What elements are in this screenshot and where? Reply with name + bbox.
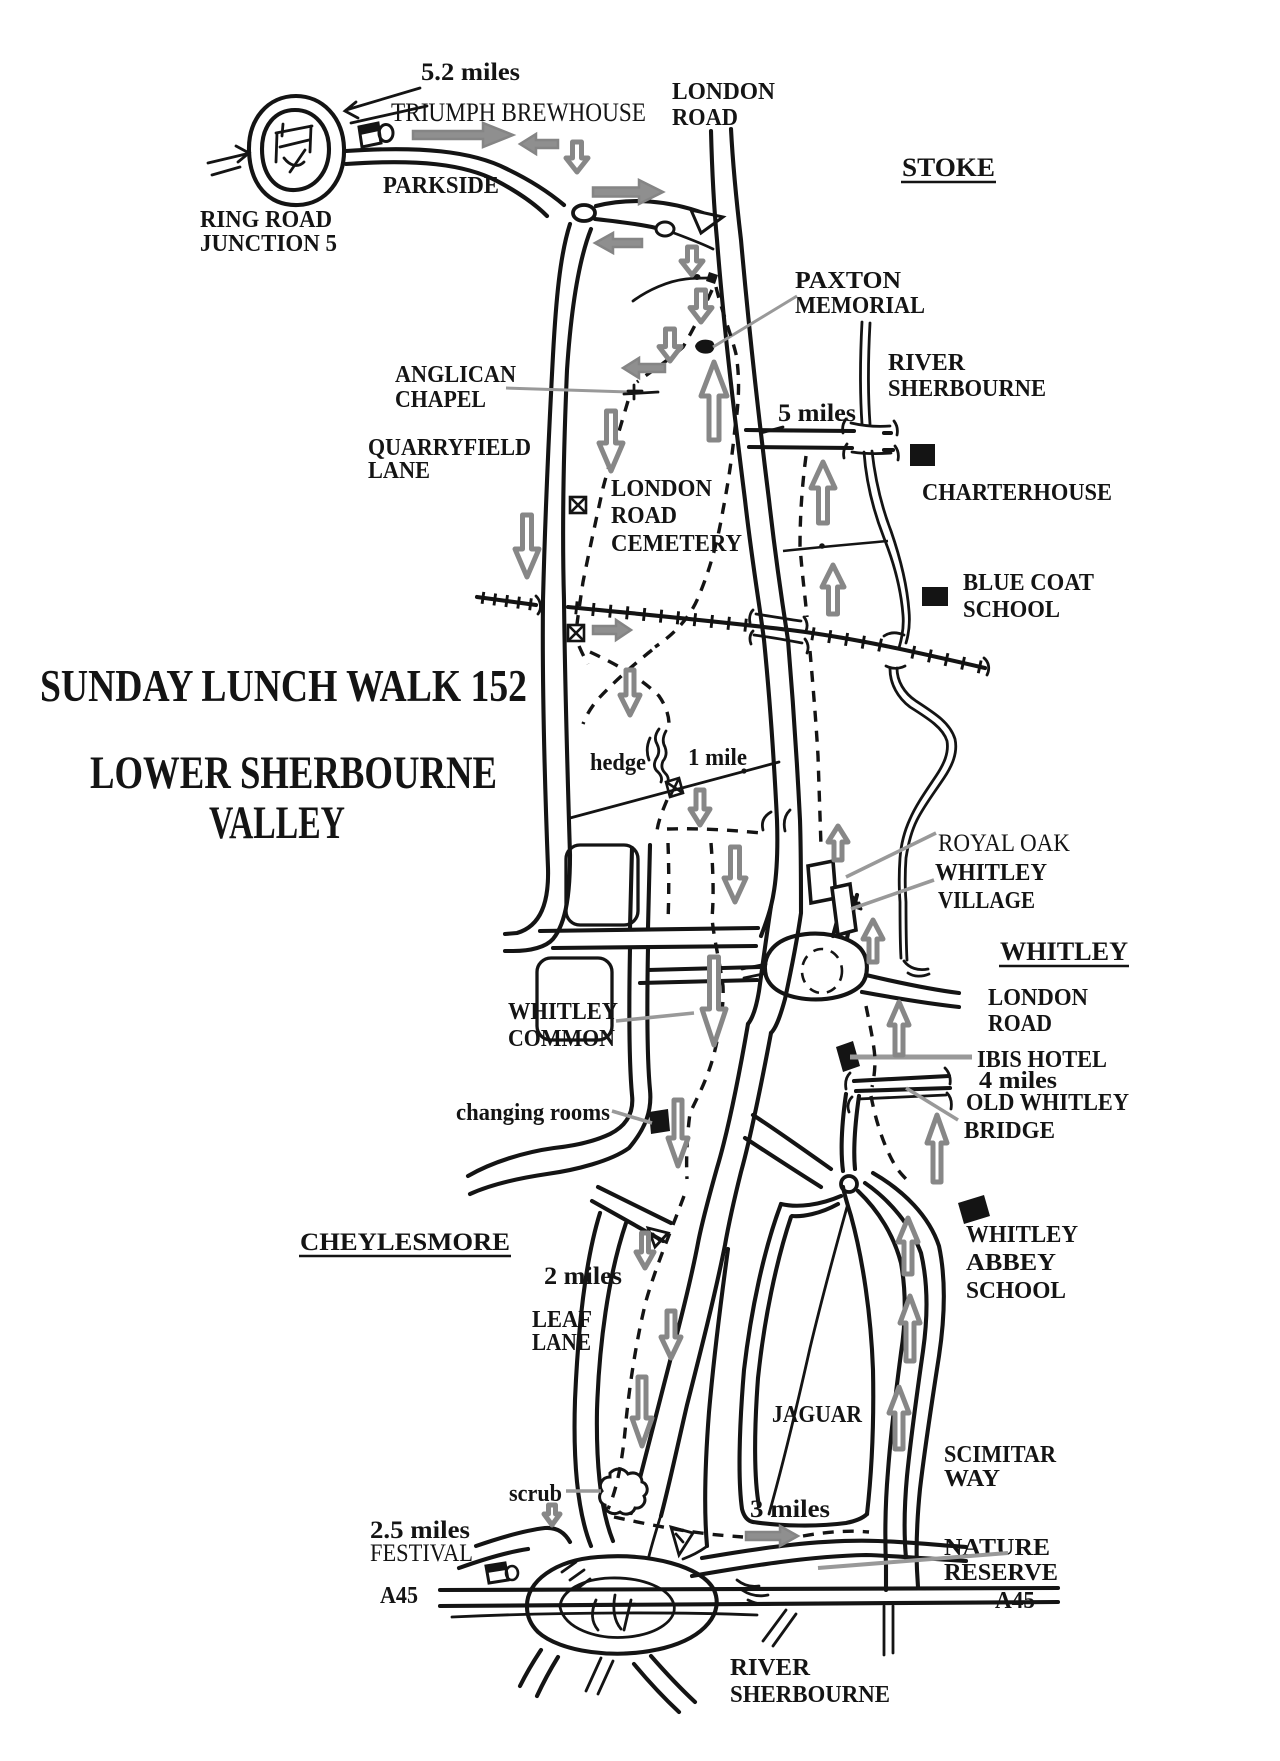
svg-text:WAY: WAY xyxy=(944,1466,1000,1492)
svg-text:SCHOOL: SCHOOL xyxy=(963,597,1060,623)
svg-text:TRIUMPH BREWHOUSE: TRIUMPH BREWHOUSE xyxy=(391,98,646,127)
svg-text:RIVER: RIVER xyxy=(888,350,966,376)
svg-text:BRIDGE: BRIDGE xyxy=(964,1118,1055,1144)
svg-text:RIVER: RIVER xyxy=(730,1655,811,1681)
svg-text:JAGUAR: JAGUAR xyxy=(772,1402,863,1428)
svg-text:CHEYLESMORE: CHEYLESMORE xyxy=(300,1229,510,1256)
svg-text:5.2 miles: 5.2 miles xyxy=(421,59,520,86)
svg-text:LONDON: LONDON xyxy=(611,476,713,502)
svg-text:A45: A45 xyxy=(380,1583,418,1609)
svg-text:JUNCTION 5: JUNCTION 5 xyxy=(200,231,337,257)
svg-text:BLUE COAT: BLUE COAT xyxy=(963,570,1094,596)
svg-text:CHARTERHOUSE: CHARTERHOUSE xyxy=(922,480,1112,506)
svg-text:3 miles: 3 miles xyxy=(750,1496,830,1523)
svg-text:VILLAGE: VILLAGE xyxy=(938,888,1035,914)
svg-text:ROYAL OAK: ROYAL OAK xyxy=(938,830,1070,857)
svg-text:STOKE: STOKE xyxy=(902,153,995,182)
svg-text:LANE: LANE xyxy=(532,1330,591,1356)
svg-text:ANGLICAN: ANGLICAN xyxy=(395,362,517,388)
svg-text:SUNDAY LUNCH WALK 152: SUNDAY LUNCH WALK 152 xyxy=(40,660,527,711)
svg-text:SCHOOL: SCHOOL xyxy=(966,1278,1066,1304)
svg-text:RING ROAD: RING ROAD xyxy=(200,207,332,233)
svg-text:hedge: hedge xyxy=(590,750,646,776)
svg-text:CHAPEL: CHAPEL xyxy=(395,387,486,413)
svg-text:LONDON: LONDON xyxy=(988,985,1089,1011)
svg-text:ROAD: ROAD xyxy=(672,105,738,131)
svg-text:RESERVE: RESERVE xyxy=(944,1560,1058,1586)
svg-text:WHITLEY: WHITLEY xyxy=(935,860,1047,886)
svg-text:SHERBOURNE: SHERBOURNE xyxy=(888,376,1046,402)
svg-text:FESTIVAL: FESTIVAL xyxy=(370,1540,473,1567)
svg-text:ROAD: ROAD xyxy=(988,1011,1052,1037)
svg-text:WHITLEY: WHITLEY xyxy=(508,999,618,1025)
svg-text:MEMORIAL: MEMORIAL xyxy=(795,293,925,319)
svg-text:LANE: LANE xyxy=(368,458,430,484)
svg-text:PAXTON: PAXTON xyxy=(795,268,902,294)
svg-text:VALLEY: VALLEY xyxy=(209,797,345,849)
svg-text:LONDON: LONDON xyxy=(672,79,776,105)
svg-text:ABBEY: ABBEY xyxy=(966,1250,1056,1276)
svg-text:SCIMITAR: SCIMITAR xyxy=(944,1442,1057,1468)
svg-text:1 mile: 1 mile xyxy=(688,745,747,771)
svg-text:OLD WHITLEY: OLD WHITLEY xyxy=(966,1090,1129,1116)
svg-text:SHERBOURNE: SHERBOURNE xyxy=(730,1682,890,1708)
svg-text:WHITLEY: WHITLEY xyxy=(966,1222,1078,1248)
svg-text:WHITLEY: WHITLEY xyxy=(1000,937,1128,966)
svg-text:ROAD: ROAD xyxy=(611,503,677,529)
svg-text:PARKSIDE: PARKSIDE xyxy=(383,173,499,199)
svg-text:CEMETERY: CEMETERY xyxy=(611,531,742,557)
svg-text:LOWER SHERBOURNE: LOWER SHERBOURNE xyxy=(90,747,497,799)
svg-text:changing rooms: changing rooms xyxy=(456,1100,610,1126)
